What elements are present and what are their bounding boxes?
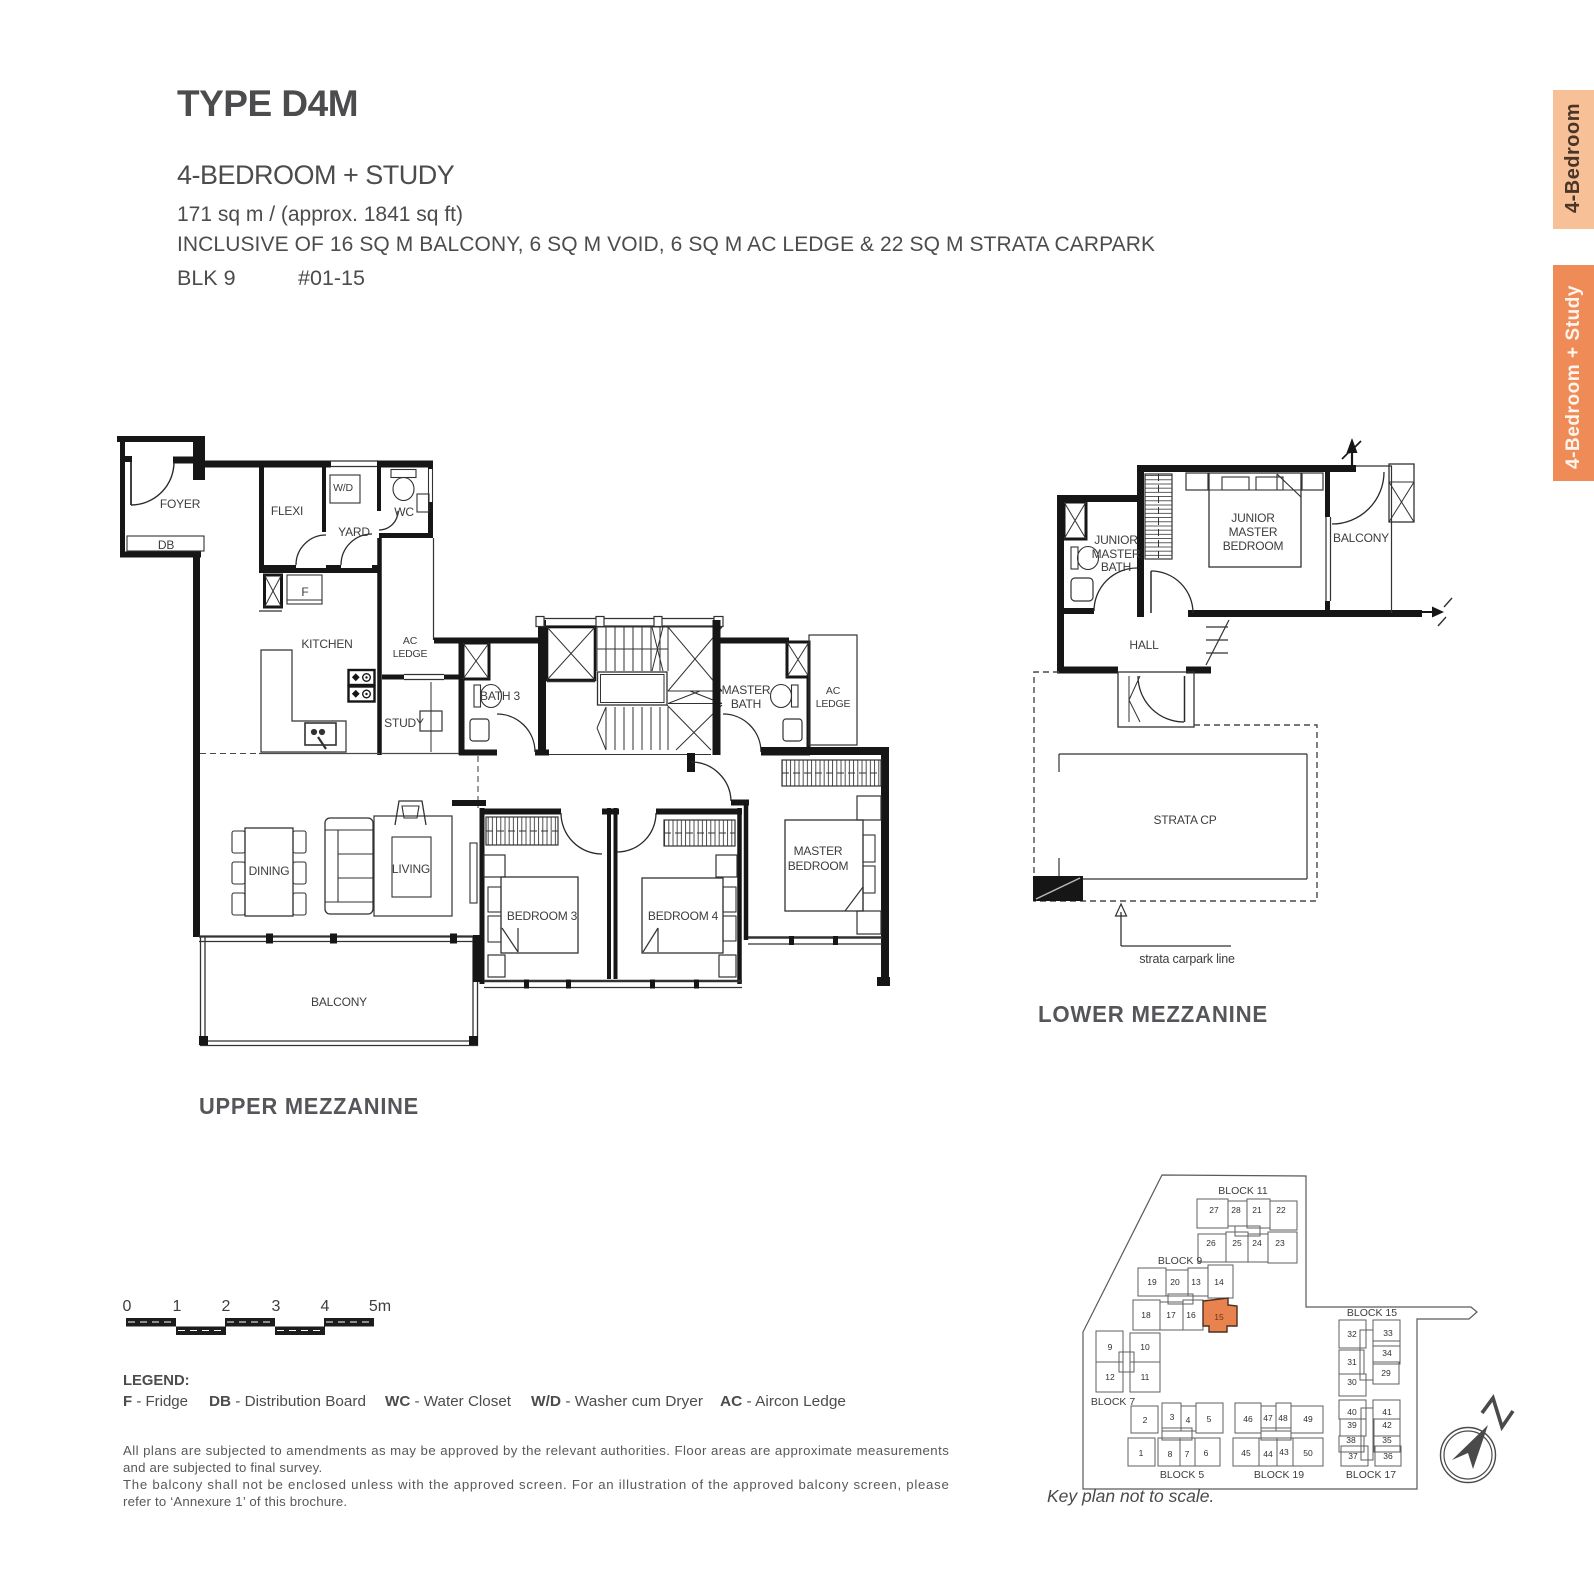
svg-text:39: 39 xyxy=(1347,1420,1357,1430)
svg-text:BLOCK 17: BLOCK 17 xyxy=(1346,1469,1396,1481)
svg-text:32: 32 xyxy=(1347,1329,1357,1339)
svg-text:LOWER MEZZANINE: LOWER MEZZANINE xyxy=(1038,1001,1268,1027)
svg-text:LEGEND:: LEGEND: xyxy=(123,1373,190,1389)
svg-text:F: F xyxy=(301,585,308,599)
svg-text:11: 11 xyxy=(1141,1372,1150,1382)
svg-text:31: 31 xyxy=(1347,1357,1357,1367)
svg-text:28: 28 xyxy=(1231,1205,1241,1215)
svg-text:40: 40 xyxy=(1347,1407,1357,1417)
svg-text:W/D - Washer cum Dryer: W/D - Washer cum Dryer xyxy=(531,1394,703,1410)
svg-text:50: 50 xyxy=(1303,1448,1313,1458)
svg-text:INCLUSIVE OF 16 SQ M BALCONY,: INCLUSIVE OF 16 SQ M BALCONY, 6 SQ M VOI… xyxy=(177,233,1155,256)
svg-text:BALCONY: BALCONY xyxy=(311,995,367,1009)
svg-text:AC: AC xyxy=(403,635,418,647)
svg-text:10: 10 xyxy=(1140,1342,1150,1352)
svg-text:Key plan not to scale.: Key plan not to scale. xyxy=(1047,1486,1214,1506)
svg-text:3: 3 xyxy=(1170,1412,1175,1422)
svg-text:14: 14 xyxy=(1214,1277,1224,1287)
svg-text:BLOCK 15: BLOCK 15 xyxy=(1347,1307,1397,1319)
svg-text:TYPE D4M: TYPE D4M xyxy=(177,83,358,124)
svg-text:BALCONY: BALCONY xyxy=(1333,531,1389,545)
svg-text:20: 20 xyxy=(1170,1277,1180,1287)
svg-text:BEDROOM: BEDROOM xyxy=(1223,539,1284,553)
svg-text:KITCHEN: KITCHEN xyxy=(301,637,352,651)
svg-text:STRATA CP: STRATA CP xyxy=(1153,813,1216,827)
svg-text:42: 42 xyxy=(1382,1420,1392,1430)
svg-text:0: 0 xyxy=(123,1298,132,1315)
svg-text:26: 26 xyxy=(1206,1238,1216,1248)
svg-text:35: 35 xyxy=(1382,1435,1392,1445)
svg-text:FOYER: FOYER xyxy=(160,497,201,511)
svg-text:47: 47 xyxy=(1263,1413,1273,1423)
svg-text:DB: DB xyxy=(158,538,174,552)
svg-text:30: 30 xyxy=(1347,1377,1357,1387)
svg-text:9: 9 xyxy=(1108,1342,1113,1352)
svg-text:25: 25 xyxy=(1232,1238,1242,1248)
svg-text:171 sq m / (approx. 1841 sq ft: 171 sq m / (approx. 1841 sq ft) xyxy=(177,203,463,226)
svg-text:34: 34 xyxy=(1382,1348,1392,1358)
svg-text:STUDY: STUDY xyxy=(384,716,424,730)
svg-text:All plans are subjected to ame: All plans are subjected to amendments as… xyxy=(123,1443,949,1458)
svg-text:23: 23 xyxy=(1275,1238,1285,1248)
svg-text:1: 1 xyxy=(173,1298,182,1315)
svg-text:MASTER: MASTER xyxy=(1229,525,1278,539)
svg-text:MASTER: MASTER xyxy=(1092,547,1141,561)
svg-text:18: 18 xyxy=(1141,1310,1151,1320)
svg-text:W/D: W/D xyxy=(333,482,353,494)
svg-text:AC - Aircon Ledge: AC - Aircon Ledge xyxy=(720,1394,846,1410)
svg-text:AC: AC xyxy=(826,685,841,697)
svg-text:37: 37 xyxy=(1348,1451,1358,1461)
svg-text:UPPER MEZZANINE: UPPER MEZZANINE xyxy=(199,1093,419,1119)
svg-text:DINING: DINING xyxy=(249,864,290,878)
svg-text:BEDROOM 3: BEDROOM 3 xyxy=(507,909,578,923)
svg-text:BLOCK 5: BLOCK 5 xyxy=(1160,1469,1205,1481)
svg-text:BLK 9: BLK 9 xyxy=(177,266,236,290)
svg-text:44: 44 xyxy=(1263,1449,1273,1459)
svg-text:MASTER: MASTER xyxy=(794,844,843,858)
svg-text:36: 36 xyxy=(1383,1451,1393,1461)
svg-text:BEDROOM 4: BEDROOM 4 xyxy=(648,909,719,923)
svg-text:19: 19 xyxy=(1147,1277,1157,1287)
svg-text:33: 33 xyxy=(1383,1328,1393,1338)
svg-text:15: 15 xyxy=(1214,1312,1224,1322)
svg-text:4: 4 xyxy=(1186,1415,1191,1425)
svg-text:#01-15: #01-15 xyxy=(298,266,365,290)
svg-text:BEDROOM: BEDROOM xyxy=(788,859,849,873)
svg-text:43: 43 xyxy=(1279,1447,1289,1457)
svg-text:2: 2 xyxy=(222,1298,231,1315)
svg-text:WC - Water Closet: WC - Water Closet xyxy=(385,1394,511,1410)
svg-text:4-BEDROOM + STUDY: 4-BEDROOM + STUDY xyxy=(177,160,455,190)
svg-text:4: 4 xyxy=(321,1298,330,1315)
svg-text:3: 3 xyxy=(272,1298,281,1315)
svg-text:BLOCK 9: BLOCK 9 xyxy=(1158,1255,1203,1267)
svg-text:45: 45 xyxy=(1241,1448,1251,1458)
svg-text:MASTER: MASTER xyxy=(722,683,771,697)
svg-text:46: 46 xyxy=(1243,1414,1253,1424)
svg-text:21: 21 xyxy=(1252,1205,1262,1215)
svg-text:5m: 5m xyxy=(369,1298,391,1315)
svg-text:27: 27 xyxy=(1209,1205,1219,1215)
svg-text:LEDGE: LEDGE xyxy=(816,698,851,710)
svg-text:and are subjected to final sur: and are subjected to final survey. xyxy=(123,1460,322,1475)
svg-text:WC: WC xyxy=(394,505,414,519)
svg-text:BATH 3: BATH 3 xyxy=(480,689,520,703)
svg-text:1: 1 xyxy=(1139,1448,1144,1458)
svg-text:48: 48 xyxy=(1278,1413,1288,1423)
svg-text:38: 38 xyxy=(1346,1435,1356,1445)
svg-text:7: 7 xyxy=(1185,1449,1190,1459)
svg-text:The balcony shall not be enclo: The balcony shall not be enclosed unless… xyxy=(123,1477,949,1492)
svg-text:5: 5 xyxy=(1207,1414,1212,1424)
svg-text:41: 41 xyxy=(1382,1407,1392,1417)
svg-text:17: 17 xyxy=(1166,1310,1176,1320)
svg-text:4-Bedroom + Study: 4-Bedroom + Study xyxy=(1563,285,1584,469)
svg-text:8: 8 xyxy=(1168,1449,1173,1459)
svg-text:BLOCK 19: BLOCK 19 xyxy=(1254,1469,1304,1481)
svg-text:JUNIOR: JUNIOR xyxy=(1094,533,1138,547)
svg-text:29: 29 xyxy=(1381,1368,1391,1378)
svg-text:LIVING: LIVING xyxy=(392,862,430,876)
svg-text:BATH: BATH xyxy=(731,697,761,711)
svg-text:FLEXI: FLEXI xyxy=(271,504,303,518)
svg-text:16: 16 xyxy=(1186,1310,1196,1320)
svg-text:12: 12 xyxy=(1105,1372,1115,1382)
svg-text:JUNIOR: JUNIOR xyxy=(1231,511,1275,525)
svg-text:HALL: HALL xyxy=(1129,638,1159,652)
svg-text:BATH: BATH xyxy=(1101,560,1131,574)
svg-text:2: 2 xyxy=(1143,1415,1148,1425)
svg-text:refer to ‘Annexure 1’ of this: refer to ‘Annexure 1’ of this brochure. xyxy=(123,1494,347,1509)
svg-text:BLOCK 7: BLOCK 7 xyxy=(1091,1396,1136,1408)
svg-text:DB - Distribution Board: DB - Distribution Board xyxy=(209,1394,366,1410)
svg-text:4-Bedroom: 4-Bedroom xyxy=(1562,103,1584,213)
svg-text:YARD: YARD xyxy=(338,525,370,539)
svg-text:BLOCK 11: BLOCK 11 xyxy=(1218,1185,1268,1197)
svg-text:13: 13 xyxy=(1191,1277,1201,1287)
svg-text:6: 6 xyxy=(1204,1448,1209,1458)
svg-text:F - Fridge: F - Fridge xyxy=(123,1394,188,1410)
svg-text:LEDGE: LEDGE xyxy=(393,648,428,660)
svg-text:22: 22 xyxy=(1276,1205,1286,1215)
svg-text:strata carpark line: strata carpark line xyxy=(1139,952,1235,966)
svg-text:49: 49 xyxy=(1303,1414,1313,1424)
svg-text:24: 24 xyxy=(1252,1238,1262,1248)
